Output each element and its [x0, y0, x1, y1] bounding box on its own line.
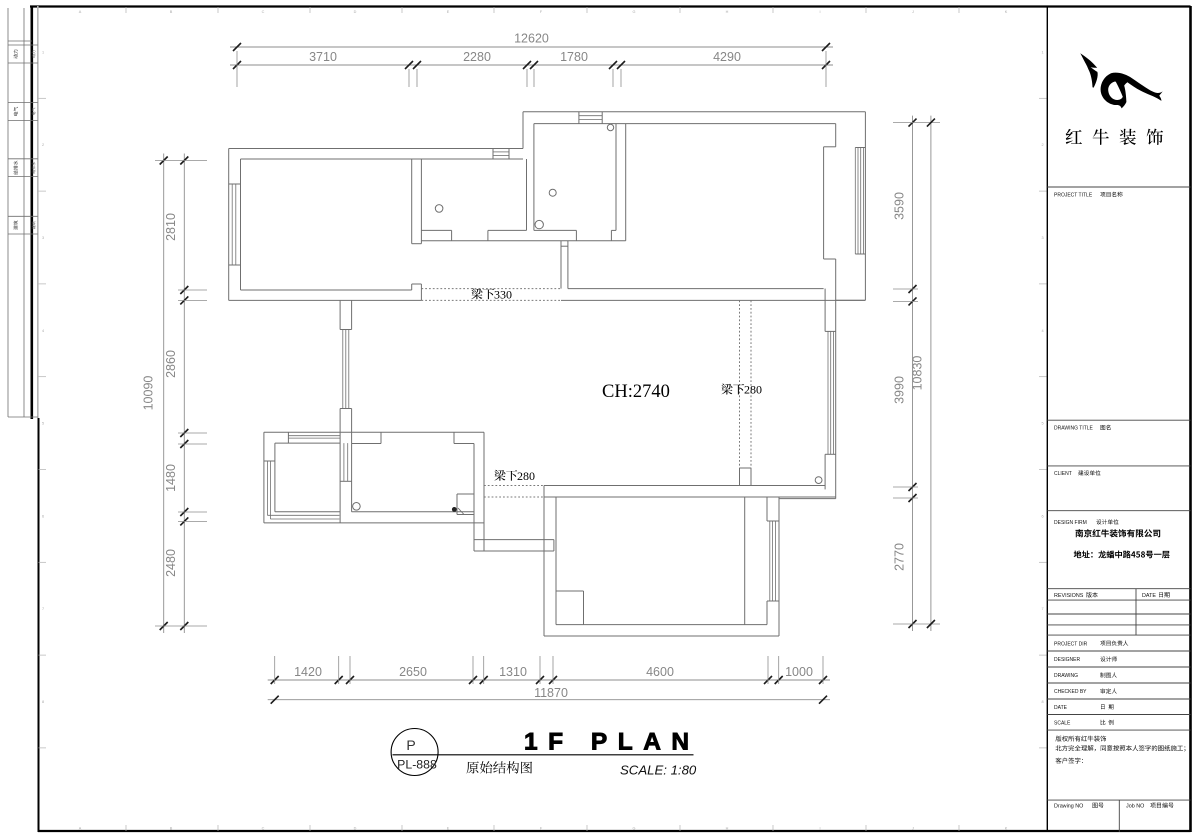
svg-text:3710: 3710: [309, 50, 337, 64]
svg-text:D: D: [354, 10, 357, 14]
svg-text:2: 2: [42, 143, 44, 147]
svg-text:E: E: [447, 10, 450, 14]
svg-text:CLIENT: CLIENT: [1054, 471, 1072, 477]
svg-text:DRAWING: DRAWING: [1054, 673, 1078, 679]
svg-text:7: 7: [1041, 607, 1043, 611]
svg-text:K: K: [1005, 10, 1008, 14]
svg-text:4: 4: [42, 329, 44, 333]
svg-text:5: 5: [1041, 422, 1043, 426]
svg-text:4: 4: [1041, 329, 1043, 333]
svg-text:PROJECT DIR: PROJECT DIR: [1054, 641, 1088, 647]
svg-text:280: 280: [744, 383, 762, 397]
svg-text:A: A: [79, 827, 82, 831]
svg-text:10090: 10090: [142, 376, 156, 411]
svg-text:5: 5: [42, 422, 44, 426]
svg-text:1310: 1310: [499, 665, 527, 679]
svg-text:1F PLAN: 1F PLAN: [524, 729, 700, 756]
svg-text:REVISIONS: REVISIONS: [1054, 593, 1084, 599]
svg-text:Drawing NO: Drawing NO: [1054, 804, 1083, 810]
svg-text:K: K: [1005, 827, 1008, 831]
svg-text:330: 330: [494, 287, 512, 301]
svg-text:CHECKED BY: CHECKED BY: [1054, 689, 1087, 695]
svg-text:Job NO: Job NO: [1126, 804, 1144, 810]
svg-text:2: 2: [1041, 143, 1043, 147]
svg-text:PL-888: PL-888: [397, 758, 437, 772]
svg-text:CH:2740: CH:2740: [602, 382, 670, 402]
svg-text:D: D: [354, 827, 357, 831]
svg-text:1480: 1480: [164, 464, 178, 492]
svg-text:B: B: [170, 827, 173, 831]
svg-text:J: J: [912, 827, 914, 831]
svg-text:DRAWING TITLE: DRAWING TITLE: [1054, 426, 1094, 432]
svg-text:4290: 4290: [713, 50, 741, 64]
svg-text:3590: 3590: [893, 192, 907, 220]
svg-text:12620: 12620: [514, 32, 549, 46]
svg-text:I: I: [819, 10, 820, 14]
svg-text:1: 1: [42, 50, 44, 54]
svg-text:8: 8: [1041, 700, 1043, 704]
svg-text:7: 7: [42, 607, 44, 611]
svg-text:2770: 2770: [893, 543, 907, 571]
svg-text:3990: 3990: [893, 376, 907, 404]
svg-text:DESIGN FIRM: DESIGN FIRM: [1054, 520, 1087, 526]
svg-text:3: 3: [42, 236, 44, 240]
svg-text:I: I: [819, 827, 820, 831]
svg-text:J: J: [912, 10, 914, 14]
svg-text:DATE: DATE: [1142, 593, 1156, 599]
svg-text:10830: 10830: [911, 356, 925, 391]
svg-text:2480: 2480: [164, 549, 178, 577]
svg-text:1: 1: [1041, 50, 1043, 54]
svg-text:6: 6: [1041, 514, 1043, 518]
svg-text:C: C: [262, 10, 265, 14]
svg-text:H: H: [726, 827, 729, 831]
svg-text:B: B: [170, 10, 173, 14]
svg-text:SCALE: 1:80: SCALE: 1:80: [620, 763, 697, 778]
svg-text:PROJECT TITLE: PROJECT TITLE: [1054, 193, 1093, 199]
svg-text:C: C: [262, 827, 265, 831]
svg-text:6: 6: [42, 514, 44, 518]
svg-text:E: E: [447, 827, 450, 831]
svg-text:DESIGNER: DESIGNER: [1054, 657, 1081, 663]
svg-text:4600: 4600: [646, 665, 674, 679]
svg-text:8: 8: [42, 700, 44, 704]
svg-text:G: G: [633, 10, 636, 14]
svg-text:3: 3: [1041, 236, 1043, 240]
svg-text:2650: 2650: [399, 665, 427, 679]
svg-text:G: G: [633, 827, 636, 831]
svg-text:2280: 2280: [463, 50, 491, 64]
svg-text:1000: 1000: [785, 665, 813, 679]
svg-text:11870: 11870: [534, 686, 568, 700]
svg-text:H: H: [726, 10, 729, 14]
svg-text:280: 280: [517, 469, 535, 483]
svg-text:1420: 1420: [294, 665, 322, 679]
svg-text:2860: 2860: [164, 350, 178, 378]
svg-text:1780: 1780: [560, 50, 588, 64]
svg-text:SCALE: SCALE: [1054, 721, 1071, 727]
svg-text:2810: 2810: [164, 213, 178, 241]
svg-text:P: P: [406, 737, 415, 753]
svg-text:DATE: DATE: [1054, 705, 1068, 711]
svg-text:A: A: [79, 10, 82, 14]
